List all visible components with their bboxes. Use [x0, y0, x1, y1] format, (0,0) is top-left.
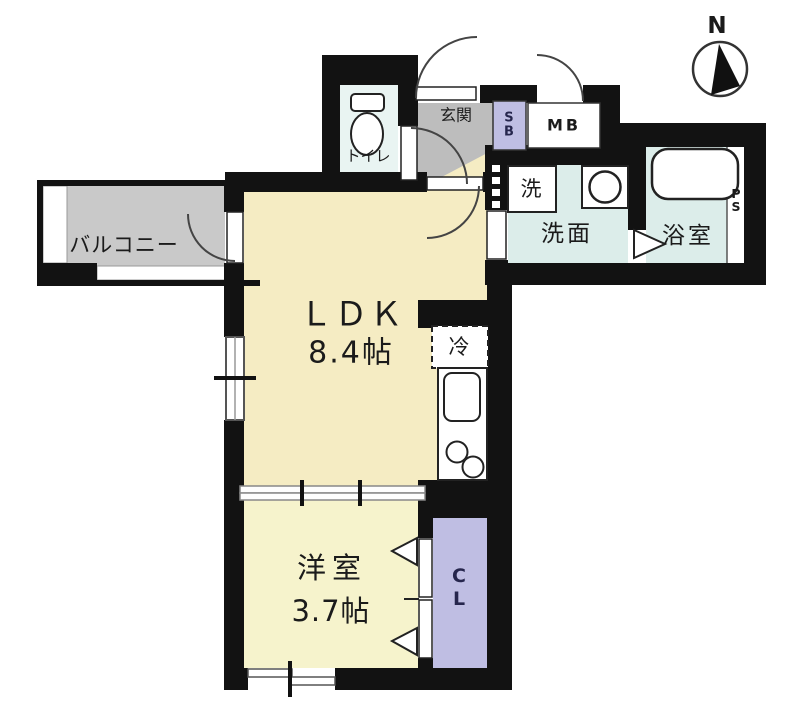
toilet-door-panel [401, 126, 417, 180]
balcony-railing-left [43, 186, 67, 263]
washroom-label: 洗面 [541, 222, 593, 246]
balcony-railing-bottom [97, 266, 225, 280]
closet-label: C L [452, 565, 466, 611]
floor-plan-graphic [0, 0, 800, 704]
balcony-label: バルコニー [69, 234, 179, 256]
ldk-label: ＬＤＫ [300, 298, 405, 333]
western-room-size-label: 3.7帖 [291, 596, 370, 626]
entrance-door-panel [416, 87, 476, 100]
shoe-box-line2: B [504, 125, 514, 139]
western-room-label: 洋室 [297, 553, 367, 583]
washroom-door-panel [487, 211, 506, 259]
sink-icon [582, 166, 628, 208]
compass-north-label: N [707, 14, 726, 38]
ldk-size-label: 8.4帖 [308, 337, 394, 369]
bathroom-label: 浴室 [662, 224, 714, 248]
closet-door-panel-upper [419, 539, 432, 597]
balcony-door-panel [227, 212, 243, 263]
compass-icon [693, 42, 747, 96]
ldk-door-panel [427, 177, 483, 190]
kitchen-counter [438, 368, 487, 480]
shoe-box-line1: S [504, 111, 514, 125]
toilet-label: トイレ [345, 149, 390, 165]
refrigerator-label: 冷 [449, 336, 470, 358]
meter-box-label: MB [547, 118, 581, 135]
bathtub-icon [652, 149, 738, 199]
pipe-space-label: P S [731, 187, 740, 213]
meter-box-door-arc [537, 55, 583, 101]
entrance-label: 玄関 [440, 108, 472, 125]
closet-line2: L [452, 588, 466, 611]
shoe-box-label: S B [504, 111, 514, 138]
closet-door-panel-lower [419, 600, 432, 658]
closet-line1: C [452, 565, 466, 588]
kitchen-sink-icon [444, 373, 480, 421]
floor-plan: N バルコニー 玄関 S B MB トイレ 洗 洗面 浴室 P S ＬＤＫ 8.… [0, 0, 800, 704]
washing-machine-label: 洗 [521, 178, 542, 200]
toilet-icon [351, 94, 384, 155]
pipe-space-line2: S [731, 200, 740, 213]
